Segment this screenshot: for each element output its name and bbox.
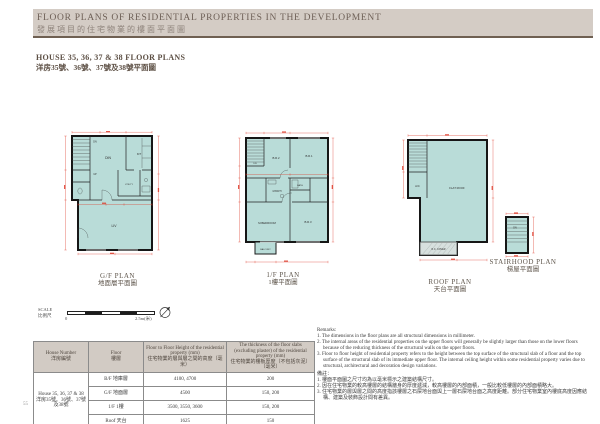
scale-max: 2.5m(米) xyxy=(135,316,152,322)
house-number-cell: House 35, 36, 37 & 38 洋房35號、36號、37號及38號 xyxy=(34,372,89,424)
brochure-page: FLOOR PLANS OF RESIDENTIAL PROPERTIES IN… xyxy=(0,0,600,424)
scale-label-zh: 比例尺 xyxy=(38,313,52,319)
roof-plan-caption-en: ROOF PLAN xyxy=(412,278,488,286)
gf-plan-caption-en: G/F PLAN xyxy=(80,272,155,280)
col-header-house: House Number 洋房編號 xyxy=(34,342,89,373)
page-title: FLOOR PLANS OF RESIDENTIAL PROPERTIES IN… xyxy=(37,13,593,23)
stairhood-plan-caption-en: STAIRHOOD PLAN xyxy=(478,258,568,266)
col-header-house-zh: 洋房編號 xyxy=(36,357,86,363)
height-cell: 4100, 4700 xyxy=(144,372,227,386)
stairhood-plan-caption-zh: 梯屋平面圖 xyxy=(478,266,568,274)
slab-cell: 150, 200 xyxy=(227,400,315,414)
height-cell: 3500, 3550, 3600 xyxy=(144,400,227,414)
stairhood-plan-caption: STAIRHOOD PLAN 梯屋平面圖 xyxy=(478,258,568,274)
col-header-height-en: Floor to Floor Height of the residential… xyxy=(146,346,224,357)
f1-stair-dn-label: DN xyxy=(253,163,257,165)
col-header-height-zh: 住宅物業的層與層之間的高度（毫米） xyxy=(146,357,224,368)
gf-plan-caption: G/F PLAN 地面層平面圖 xyxy=(80,272,155,288)
gf-stair-up-label: UP xyxy=(93,173,97,176)
roof-ac-label: A/C xyxy=(415,184,420,188)
gf-living-label: LIV xyxy=(111,224,117,228)
gf-dining-label: DIN xyxy=(105,156,111,160)
f1-bedroom3-label: B.R.3 xyxy=(305,220,312,224)
roof-floor-plan: A/C FLAT ROOF R.C. COVER xyxy=(401,126,503,272)
height-cell: 4500 xyxy=(144,386,227,400)
roof-flat-roof-label: FLAT ROOF xyxy=(449,186,465,190)
house-number-zh: 洋房35號、36號、37號及38號 xyxy=(36,398,86,409)
slab-cell: 200 xyxy=(227,372,315,386)
f1-mbedroom-label: M.BEDROOM xyxy=(258,221,276,225)
f1-floor-plan: DN B.R.2 B.R.1 M.BATH BATH M.BEDROOM B.R… xyxy=(236,130,336,268)
scale-zero: 0 xyxy=(65,316,67,321)
col-header-slab-en: The thickness of the floor slabs (exclud… xyxy=(234,343,306,359)
remark-item-zh: 3. 住宅物業的層與層之間的高度指該樓層之石屎地台面與上一層石屎地台面之高度距離… xyxy=(317,390,590,402)
f1-mbath-label: M.BATH xyxy=(273,190,282,193)
remark-item: 2. The internal areas of the residential… xyxy=(317,340,590,352)
scale-label-en: SCALE xyxy=(38,307,52,313)
stairhood-dn-label: DN xyxy=(513,227,517,230)
gf-utility-label: UTILITY xyxy=(125,184,134,186)
roof-rc-cover-label: R.C. COVER xyxy=(432,248,446,251)
scale-label: SCALE 比例尺 xyxy=(38,307,52,318)
col-header-floor-en: Floor xyxy=(111,351,122,356)
col-header-slab: The thickness of the floor slabs (exclud… xyxy=(227,342,315,373)
gf-floor-plan: DN UP DIN KIT UTILITY LIV xyxy=(62,130,162,256)
f1-bedroom1-label: B.R.1 xyxy=(306,154,313,158)
col-header-floor-zh: 樓層 xyxy=(91,357,141,363)
house-number-en: House 35, 36, 37 & 38 xyxy=(38,392,83,397)
floor-cell: 1/F 1樓 xyxy=(89,400,144,414)
floor-cell: Roof 天台 xyxy=(89,414,144,424)
col-header-house-en: House Number xyxy=(46,351,76,356)
col-header-floor: Floor 樓層 xyxy=(89,342,144,373)
table-row: House 35, 36, 37 & 38 洋房35號、36號、37號及38號 … xyxy=(34,372,315,386)
floor-cell: G/F 地面層 xyxy=(89,386,144,400)
height-cell: 1625 xyxy=(144,414,227,424)
scale-bar xyxy=(67,311,155,315)
floor-cell: B/F 地庫層 xyxy=(89,372,144,386)
north-arrow-icon xyxy=(157,304,173,320)
stairhood-floor-plan: DN xyxy=(500,212,544,260)
page-number: 55 xyxy=(23,402,28,407)
page-title-zh: 發展項目的住宅物業的樓面平面圖 xyxy=(37,24,593,35)
roof-plan-caption: ROOF PLAN 天台平面圖 xyxy=(412,278,488,294)
slab-cell: 150, 200 xyxy=(227,386,315,400)
page-header: FLOOR PLANS OF RESIDENTIAL PROPERTIES IN… xyxy=(33,9,593,38)
section-title: HOUSE 35, 36, 37 & 38 FLOOR PLANS 洋房35號、… xyxy=(36,53,185,73)
gf-plan-caption-zh: 地面層平面圖 xyxy=(80,280,155,288)
remarks: Remarks: 1. The dimensions in the floor … xyxy=(317,328,590,402)
remark-item: 3. Floor to floor height of residential … xyxy=(317,352,590,370)
section-title-zh: 洋房35號、36號、37號及38號平面圖 xyxy=(36,63,185,73)
roof-plan-caption-zh: 天台平面圖 xyxy=(412,286,488,294)
col-header-height: Floor to Floor Height of the residential… xyxy=(144,342,227,373)
spec-table: House Number 洋房編號 Floor 樓層 Floor to Floo… xyxy=(33,341,315,424)
gf-kitchen-label: KIT xyxy=(137,152,142,156)
col-header-slab-zh: 住宅物業的樓板厚度（不包括灰泥）（毫米） xyxy=(229,360,312,371)
gf-stair-dn-label: DN xyxy=(93,141,97,144)
f1-balcony-label: BALCONY xyxy=(260,248,271,251)
f1-bedroom2-label: B.R.2 xyxy=(273,156,280,160)
f1-bath-label: BATH xyxy=(297,184,303,187)
f1-plan-caption-en: 1/F PLAN xyxy=(245,271,321,279)
f1-plan-caption-zh: 1樓平面圖 xyxy=(245,279,321,287)
slab-cell: 150 xyxy=(227,414,315,424)
f1-plan-caption: 1/F PLAN 1樓平面圖 xyxy=(245,271,321,287)
section-title-en: HOUSE 35, 36, 37 & 38 FLOOR PLANS xyxy=(36,53,185,63)
